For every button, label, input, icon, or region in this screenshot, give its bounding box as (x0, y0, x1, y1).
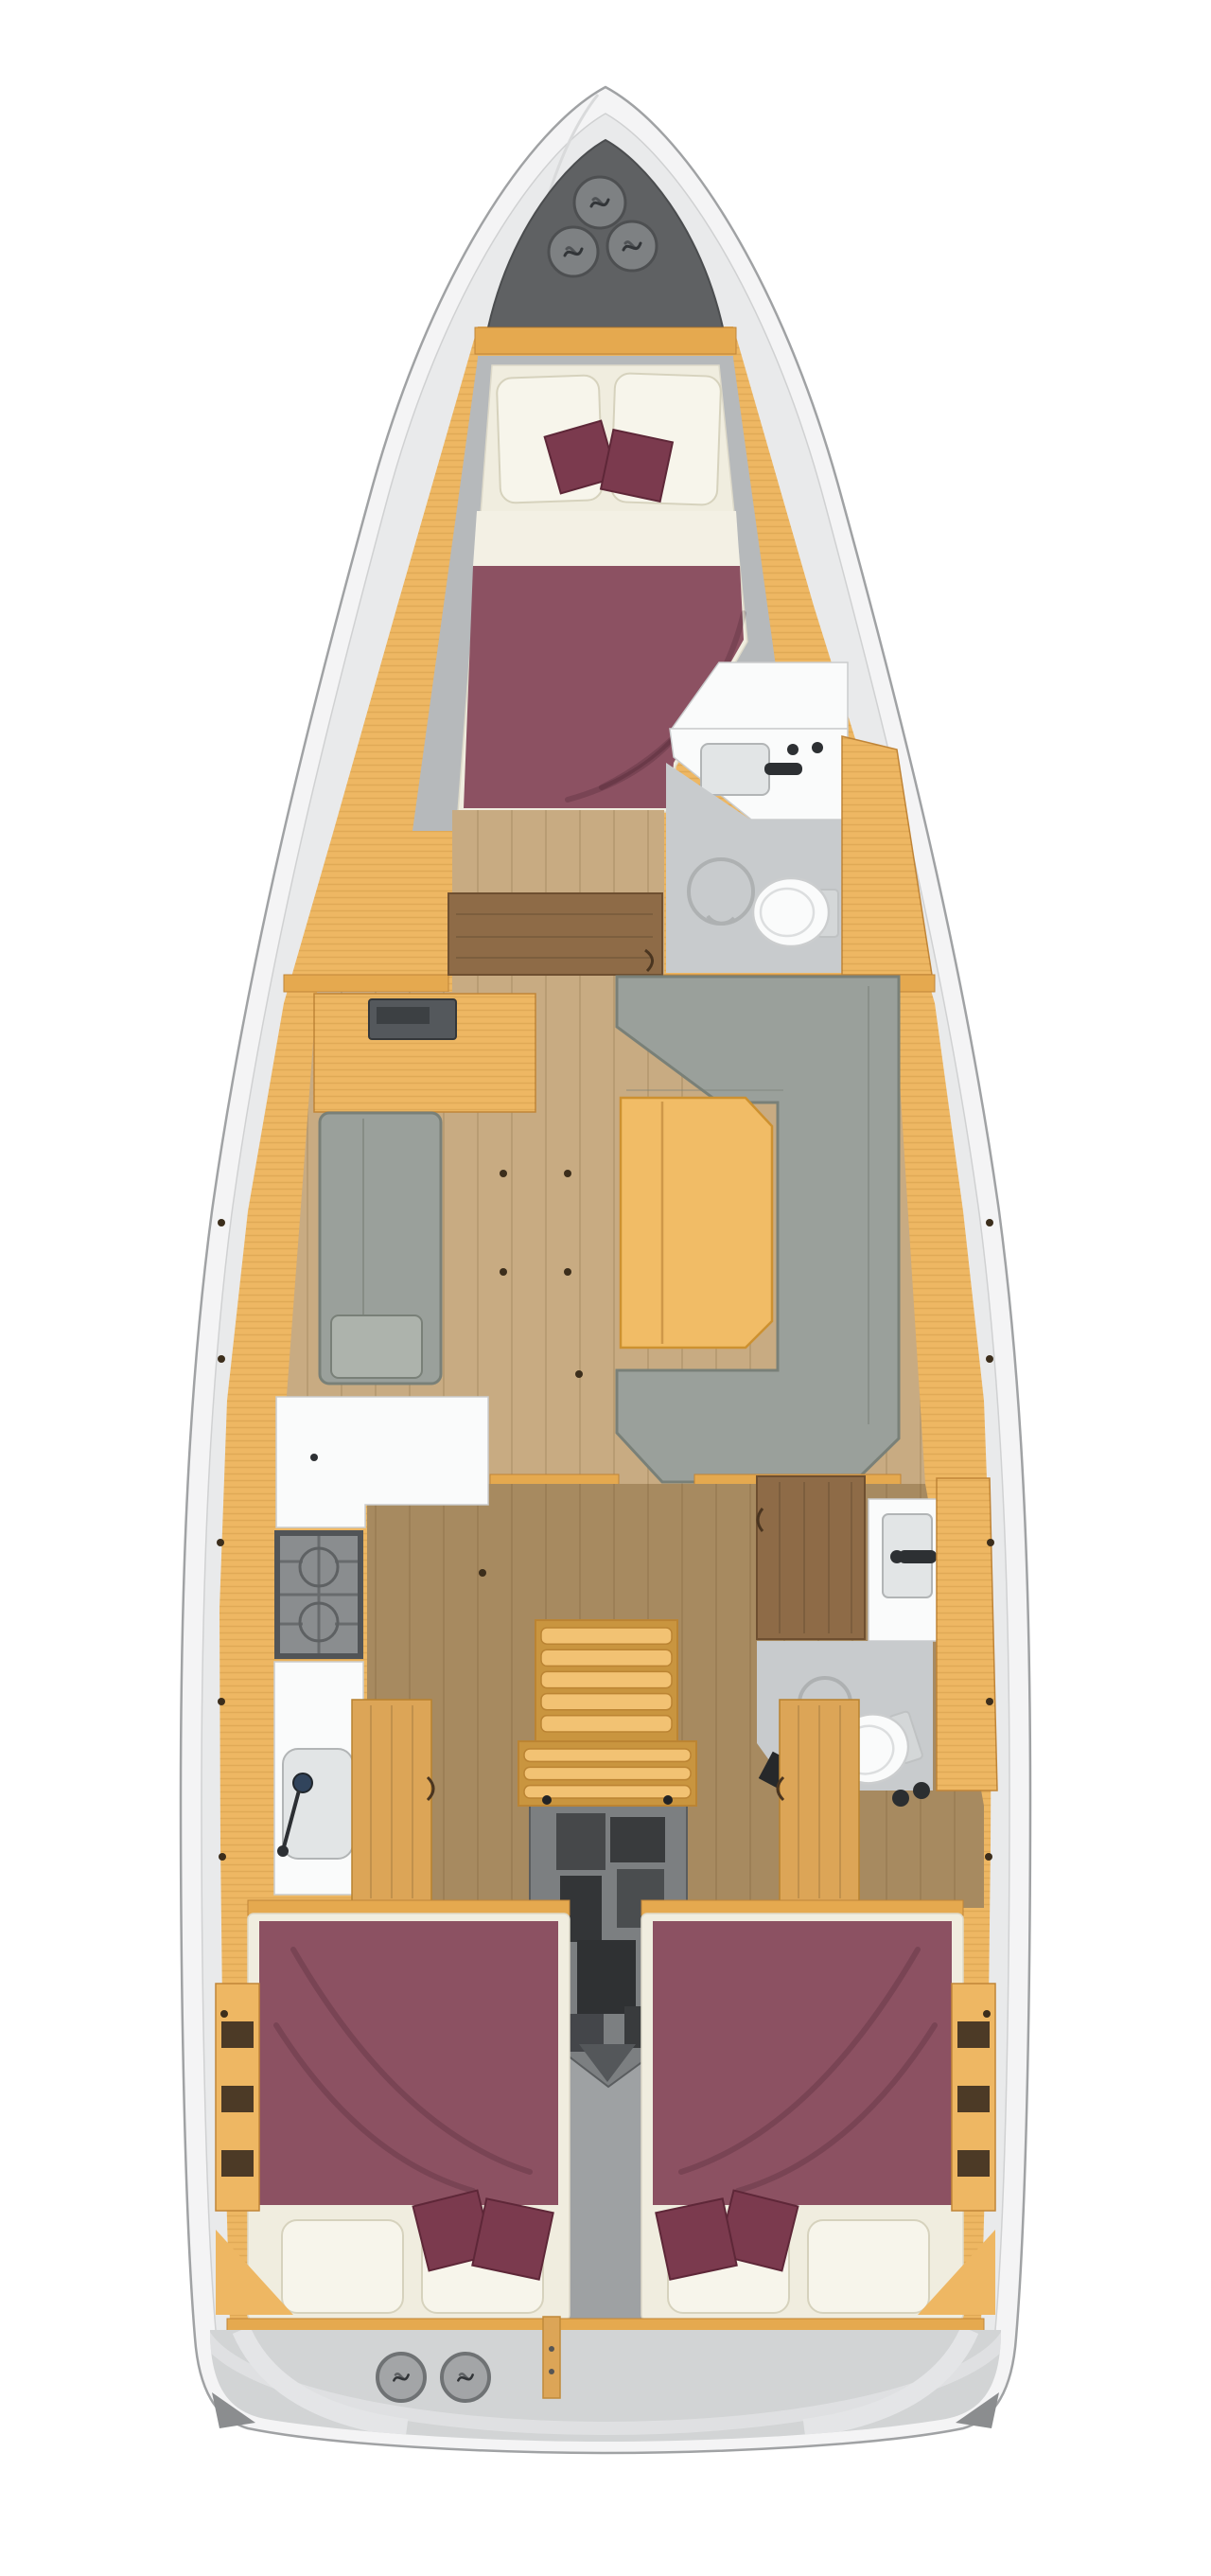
stern-hatch-2 (442, 2354, 489, 2401)
port-settee (320, 1113, 441, 1384)
shelf-slot (221, 2150, 254, 2177)
decor-cushion (656, 2198, 736, 2279)
stern-bulkhead (227, 2319, 984, 2332)
between-cabins-void (566, 2056, 649, 2339)
stair-tread (541, 1671, 672, 1687)
galley-sink (283, 1749, 353, 1859)
upper-steps (535, 1620, 677, 1741)
stair-tread (524, 1749, 691, 1761)
stair-bolt (663, 1795, 673, 1805)
bow-bulkhead (475, 327, 736, 354)
yacht-floor-plan (0, 0, 1211, 2576)
stair-tread (541, 1650, 672, 1666)
bow-hatch-3 (607, 221, 657, 271)
toilet-pump-icon (913, 1782, 930, 1799)
faucet-icon (764, 763, 802, 775)
instrument-screen (377, 1007, 430, 1024)
shelf-slot (957, 2086, 990, 2112)
faucet-icon (293, 1773, 312, 1792)
shelf-slot (957, 2021, 990, 2048)
decor-cushion (601, 430, 673, 502)
worktop-fitting (310, 1454, 318, 1461)
lazarette-divider (543, 2317, 560, 2398)
stair-tread (541, 1628, 672, 1644)
faucet-icon (899, 1550, 937, 1563)
cabin-door (352, 1700, 433, 1904)
cabin-door (778, 1700, 859, 1904)
forward-cabin-door (448, 893, 662, 975)
bow-hatch-1 (574, 177, 625, 228)
decor-cushion (472, 2198, 553, 2279)
stove (274, 1530, 363, 1659)
washbasin (701, 744, 769, 795)
shelf-slot (221, 2086, 254, 2112)
floor-fitting (479, 1569, 486, 1577)
shelf-slot (221, 2021, 254, 2048)
sheet-fold (473, 511, 740, 566)
chart-table (314, 994, 535, 1112)
stair-bolt (542, 1795, 552, 1805)
stair-tread (541, 1694, 672, 1710)
bow-hatch-2 (549, 227, 598, 276)
floor-plan-drawing (0, 0, 1211, 2576)
stern-hatch-1 (377, 2354, 425, 2401)
seat-cushion (331, 1315, 422, 1378)
aft-head-door (757, 1476, 865, 1639)
side-shelf (952, 1984, 995, 2211)
saloon-table (621, 1098, 772, 1348)
pillow (282, 2220, 403, 2313)
tap-knob-icon (812, 742, 823, 753)
galley-sink-unit (274, 1662, 363, 1895)
tap-knob-icon (787, 744, 799, 755)
side-shelf (216, 1984, 259, 2211)
stair-tread (524, 1767, 691, 1779)
pillow (808, 2220, 929, 2313)
shelf-slot (957, 2150, 990, 2177)
toilet-pump-icon (892, 1790, 909, 1807)
stair-tread (541, 1716, 672, 1732)
